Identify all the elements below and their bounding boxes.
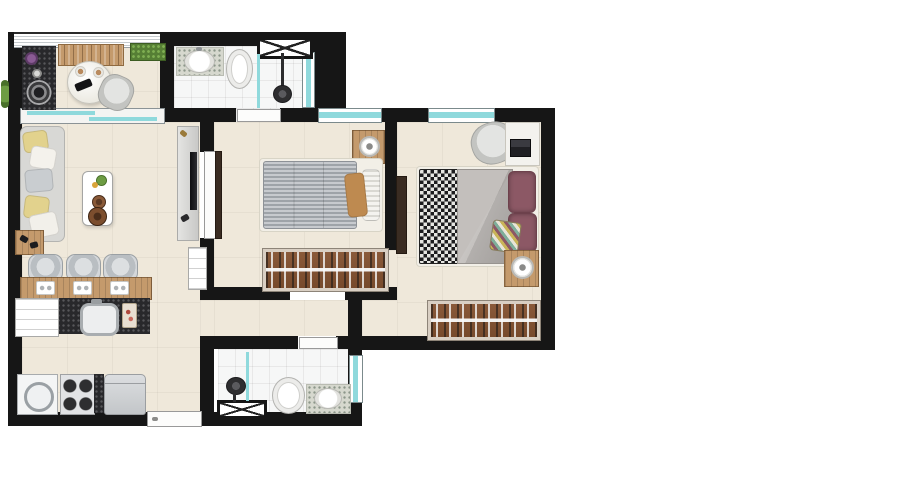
table-plate-1 [75, 66, 86, 77]
bathroom2-hatched-window [217, 400, 267, 419]
bathroom1-door [237, 109, 281, 122]
bathroom1-shower-glass [257, 54, 260, 108]
wall-bathroom2-top-a [214, 336, 298, 349]
laptop [510, 139, 531, 157]
bathroom1-toilet [226, 49, 253, 89]
bedroom2-wardrobe [428, 301, 540, 340]
stove [60, 374, 95, 415]
kitchen-sink [80, 303, 119, 336]
bedroom2-window [428, 108, 495, 123]
wall-living-bedroom1-a [200, 122, 214, 152]
utility-cabinet [188, 247, 207, 290]
fridge-divider [105, 383, 145, 384]
kitchen-faucet [91, 299, 102, 304]
place-setting-2 [73, 281, 92, 295]
sofa-pillow-white-1 [28, 145, 57, 171]
cutting-board [122, 303, 137, 328]
floor-plan [0, 0, 898, 502]
counter-segment [94, 374, 104, 413]
washing-machine [17, 374, 58, 415]
wall-right [541, 108, 555, 350]
bathroom2-side-window [349, 355, 363, 403]
hall-passage-floor [200, 300, 214, 336]
dishwasher [15, 298, 59, 337]
bedroom2-lamp [511, 256, 534, 279]
hall-floor [214, 300, 348, 336]
wall-bathroom2-left [200, 336, 214, 412]
entry-door [147, 411, 202, 427]
bathroom2-shower-head [226, 377, 246, 395]
balcony-sliding-door [20, 108, 165, 124]
bedroom1-door-edge [215, 151, 222, 239]
bedroom1-window [318, 108, 382, 123]
bathroom1-shower-head [273, 85, 292, 103]
bedroom1-duvet [263, 161, 357, 229]
place-setting-1 [36, 281, 55, 295]
coffee-table-flower [92, 182, 98, 188]
bathroom1-faucet [196, 47, 202, 51]
hall-floor-east [362, 300, 397, 336]
bedroom2-door [396, 176, 407, 254]
potted-plant [25, 52, 38, 65]
place-setting-3 [110, 281, 129, 295]
bathroom1-side-window [302, 52, 315, 108]
outside-greenery [1, 80, 9, 108]
serving-tray-2 [88, 207, 107, 226]
table-plate-2 [93, 67, 104, 78]
bedroom1-lamp [359, 136, 380, 157]
sliding-pane-2 [89, 117, 157, 121]
washer-lid [24, 382, 54, 412]
bathroom2-shower-glass [246, 352, 249, 401]
sofa-pillow-gray [24, 168, 54, 193]
bedroom2-pillow-1 [508, 171, 536, 213]
planter-box [130, 43, 166, 61]
bathroom2-sink [314, 388, 342, 409]
tv [190, 152, 197, 210]
bathroom1-hatched-window [257, 37, 313, 59]
entry-door-handle [152, 417, 158, 421]
counter-bowl [32, 69, 42, 78]
bathroom1-shower-arm [281, 53, 284, 89]
bedroom2-patterned-cushion [489, 219, 522, 254]
bedroom1-wardrobe [263, 249, 388, 291]
bathroom1-sink [184, 50, 215, 73]
sliding-pane-1 [27, 111, 95, 115]
bedroom2-patterned-blanket [419, 169, 460, 264]
bathroom2-shower-arm [233, 391, 236, 402]
barbecue-grill [26, 80, 52, 105]
bathroom2-toilet [272, 377, 305, 414]
refrigerator [104, 374, 146, 415]
bathroom2-door [299, 337, 338, 349]
